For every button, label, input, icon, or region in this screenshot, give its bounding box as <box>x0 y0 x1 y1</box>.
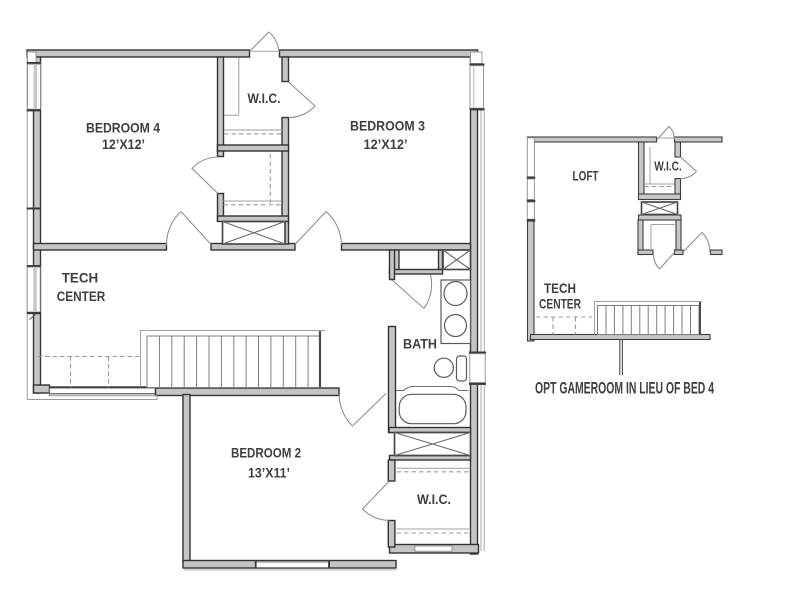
svg-text:TECH: TECH <box>62 270 99 286</box>
svg-text:W.I.C.: W.I.C. <box>417 492 451 507</box>
svg-text:CENTER: CENTER <box>57 288 106 304</box>
svg-text:BEDROOM 2: BEDROOM 2 <box>231 445 301 461</box>
svg-text:OPT GAMEROOM IN LIEU OF BED 4: OPT GAMEROOM IN LIEU OF BED 4 <box>535 380 714 398</box>
svg-text:BEDROOM 3: BEDROOM 3 <box>350 118 425 134</box>
svg-text:CENTER: CENTER <box>539 296 581 312</box>
svg-text:12’X12’: 12’X12’ <box>364 136 408 152</box>
svg-text:13’X11’: 13’X11’ <box>248 465 290 481</box>
svg-text:TECH: TECH <box>544 280 576 296</box>
svg-text:W.I.C.: W.I.C. <box>248 90 281 106</box>
svg-text:12’X12’: 12’X12’ <box>102 136 145 152</box>
svg-text:LOFT: LOFT <box>573 169 600 184</box>
svg-text:BEDROOM 4: BEDROOM 4 <box>86 120 160 136</box>
svg-text:W.I.C.: W.I.C. <box>654 160 682 174</box>
svg-text:BATH: BATH <box>403 336 437 352</box>
